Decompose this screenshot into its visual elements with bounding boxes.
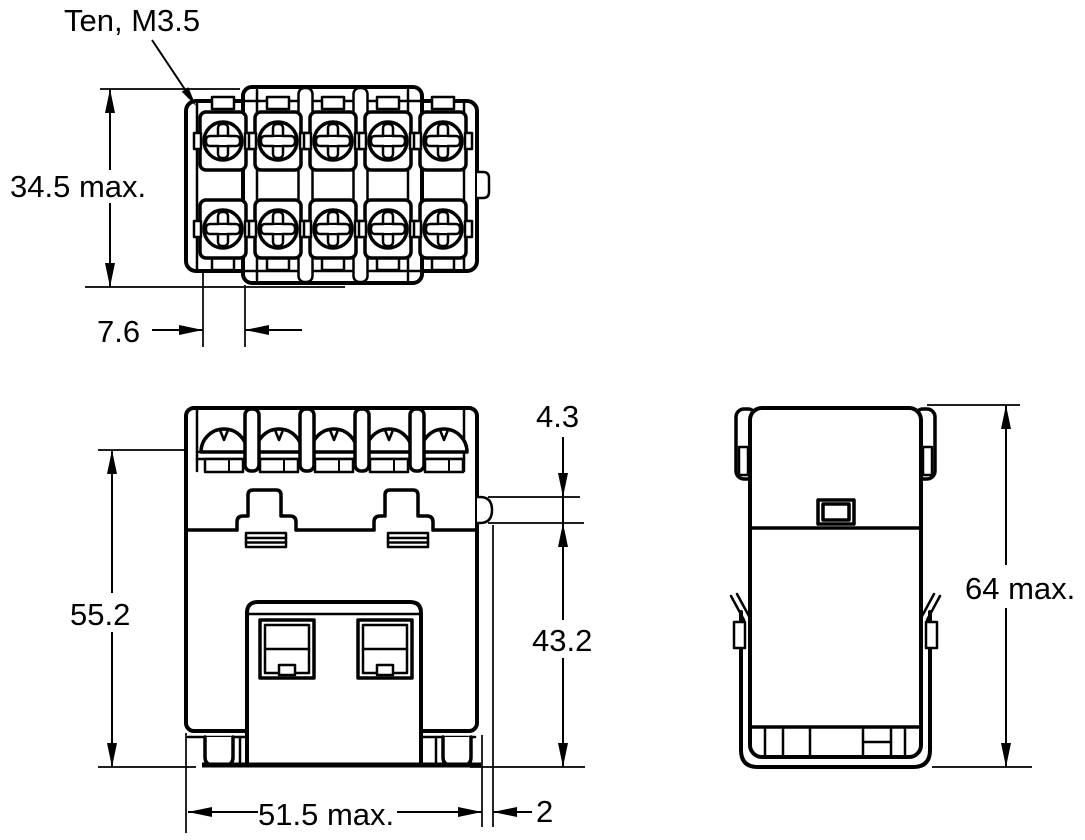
front-view-part xyxy=(186,408,492,765)
side-view-part xyxy=(731,408,940,767)
dimension-55-2: 55.2 xyxy=(70,450,196,767)
front-view: 55.2 4.3 43.2 51.5 max. 2 xyxy=(70,399,592,833)
top-view-part xyxy=(186,87,489,283)
top-view: 34.5 max. 7.6 Ten, M3.5 xyxy=(10,3,489,349)
dimension-4-3-and-43-2: 4.3 43.2 xyxy=(470,399,592,767)
relay-recess xyxy=(247,602,421,765)
dim-pitch-label: 7.6 xyxy=(97,314,140,349)
dimension-64-max: 64 max. xyxy=(927,405,1075,767)
dim-top-height-label: 34.5 max. xyxy=(10,169,146,204)
dim-bump-height-label: 4.3 xyxy=(536,399,579,434)
callout-terminal-screws: Ten, M3.5 xyxy=(64,3,200,106)
dim-overall-height-label: 64 max. xyxy=(965,571,1075,606)
dimension-drawing-svg: 34.5 max. 7.6 Ten, M3.5 xyxy=(0,0,1085,840)
technical-drawing: 34.5 max. 7.6 Ten, M3.5 xyxy=(0,0,1085,840)
dim-front-height-label: 55.2 xyxy=(70,597,130,632)
front-side-bump xyxy=(477,497,492,523)
dim-bump-depth-label: 2 xyxy=(536,794,553,829)
front-screw-heads xyxy=(201,429,467,472)
terminal-screws-label: Ten, M3.5 xyxy=(64,3,200,38)
slotted-plate-right xyxy=(388,533,428,547)
side-window xyxy=(818,500,854,524)
top-side-bump xyxy=(477,172,489,198)
dim-lower-height-label: 43.2 xyxy=(532,623,592,658)
dim-width-label: 51.5 max. xyxy=(258,797,394,832)
side-view: 64 max. xyxy=(731,405,1075,767)
slotted-plate-left xyxy=(246,533,286,547)
